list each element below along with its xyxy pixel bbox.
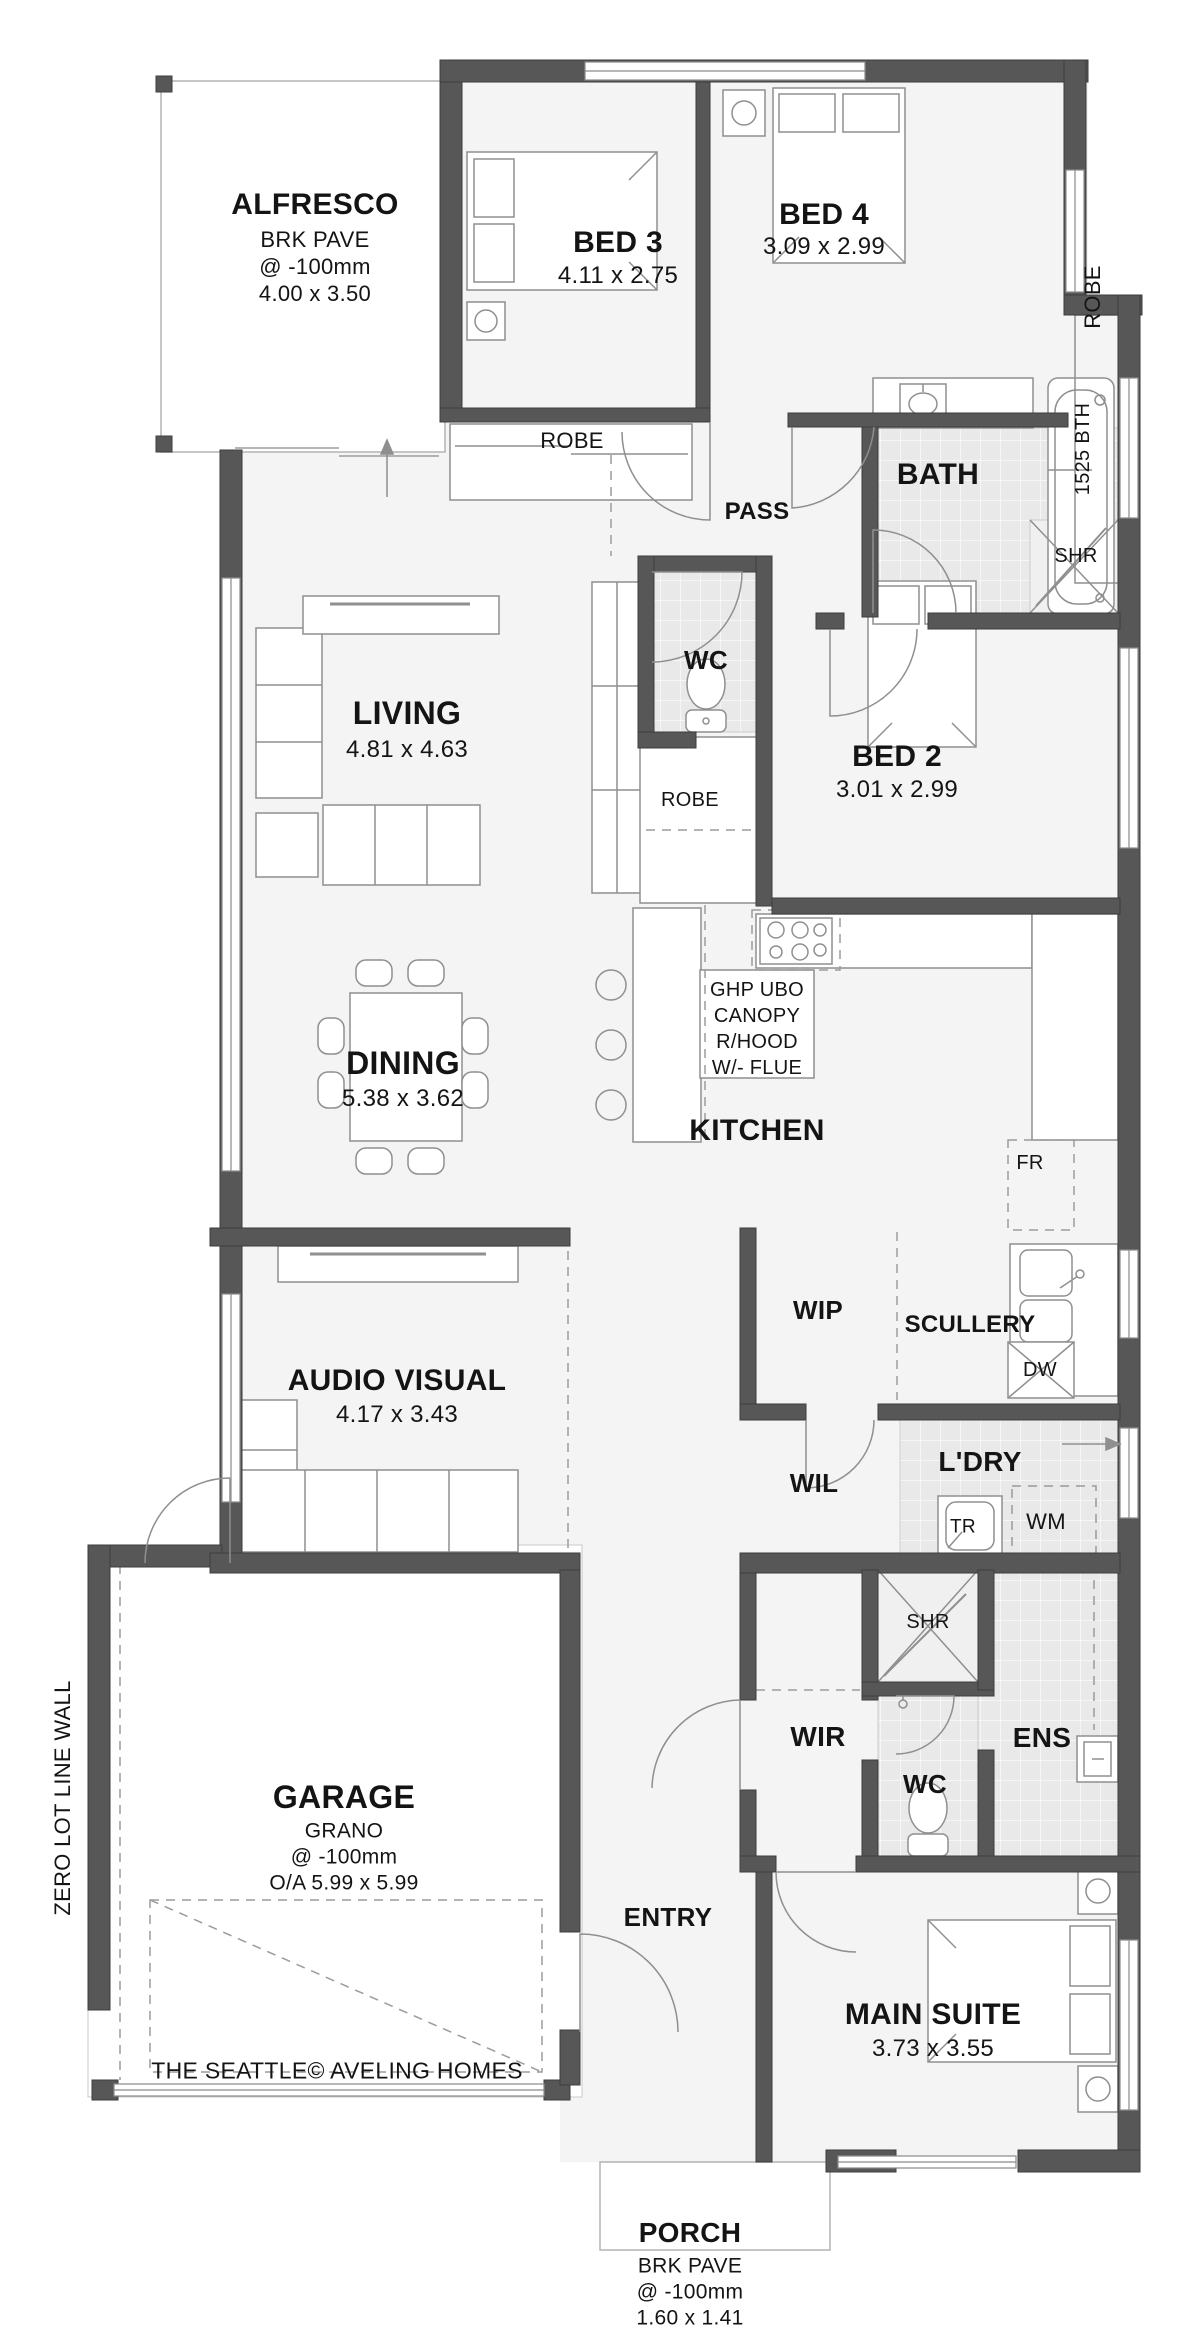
footer-label: THE SEATTLE© AVELING HOMES [151, 2060, 523, 2083]
ens-label: ENS [1013, 1724, 1071, 1752]
dw-label: DW [1023, 1360, 1057, 1380]
shr-bath-label: SHR [1054, 546, 1097, 566]
kitchen-note3-label: R/HOOD [716, 1032, 798, 1052]
robe-bed4-label: ROBE [1082, 265, 1104, 329]
garage-level-label: @ -100mm [291, 1847, 398, 1868]
alfresco-name-label: ALFRESCO [231, 190, 398, 220]
garage-oa-label: O/A 5.99 x 5.99 [269, 1873, 418, 1894]
bed3-dims-label: 4.11 x 2.75 [558, 264, 678, 288]
kitchen-note4-label: W/- FLUE [712, 1058, 802, 1078]
suite-name-label: MAIN SUITE [845, 2000, 1021, 2030]
ldry-label: L'DRY [938, 1448, 1021, 1476]
shr-ens-label: SHR [906, 1612, 949, 1632]
alfresco-dims-label: 4.00 x 3.50 [259, 283, 371, 305]
garage-name-label: GARAGE [273, 1781, 415, 1813]
wc-ens-label: WC [903, 1771, 947, 1797]
dining-name-label: DINING [346, 1047, 460, 1079]
porch-name-label: PORCH [639, 2219, 742, 2247]
wir-label: WIR [790, 1723, 845, 1751]
porch-finish-label: BRK PAVE [638, 2256, 742, 2277]
alfresco-finish-label: BRK PAVE [260, 229, 369, 251]
bed3-name-label: BED 3 [573, 228, 663, 258]
bed2-name-label: BED 2 [852, 742, 942, 772]
wil-label: WIL [790, 1470, 839, 1496]
kitchen-note1-label: GHP UBO [710, 980, 804, 1000]
robe-bed2-label: ROBE [661, 790, 719, 810]
bed4-name-label: BED 4 [779, 200, 869, 230]
wip-label: WIP [793, 1297, 843, 1323]
pass-label: PASS [725, 500, 790, 524]
zero-lot-line-label: ZERO LOT LINE WALL [52, 1680, 74, 1915]
robe-bed3-label: ROBE [540, 430, 604, 452]
garage-finish-label: GRANO [305, 1821, 384, 1842]
alfresco-level-label: @ -100mm [259, 256, 371, 278]
wc-main-label: WC [684, 647, 728, 673]
bed4-dims-label: 3.09 x 2.99 [763, 235, 885, 259]
fr-label: FR [1016, 1153, 1043, 1173]
wm-label: WM [1026, 1511, 1066, 1533]
bed2-dims-label: 3.01 x 2.99 [836, 778, 958, 802]
living-dims-label: 4.81 x 4.63 [346, 738, 468, 762]
dining-dims-label: 5.38 x 3.62 [342, 1087, 464, 1111]
av-name-label: AUDIO VISUAL [288, 1366, 507, 1396]
kitchen-note2-label: CANOPY [714, 1006, 800, 1026]
entry-label: ENTRY [624, 1904, 713, 1930]
scullery-label: SCULLERY [905, 1313, 1036, 1337]
tr-label: TR [950, 1518, 976, 1537]
porch-level-label: @ -100mm [637, 2282, 744, 2303]
floor-plan-page: ALFRESCOBRK PAVE@ -100mm4.00 x 3.50BED 3… [0, 0, 1200, 2352]
suite-dims-label: 3.73 x 3.55 [872, 2037, 994, 2061]
bath-tub-label: 1525 BTH [1073, 403, 1093, 495]
bath-name-label: BATH [897, 460, 979, 490]
porch-dims-label: 1.60 x 1.41 [636, 2308, 743, 2329]
av-dims-label: 4.17 x 3.43 [336, 1403, 458, 1427]
living-name-label: LIVING [353, 697, 461, 729]
kitchen-name-label: KITCHEN [689, 1116, 824, 1146]
